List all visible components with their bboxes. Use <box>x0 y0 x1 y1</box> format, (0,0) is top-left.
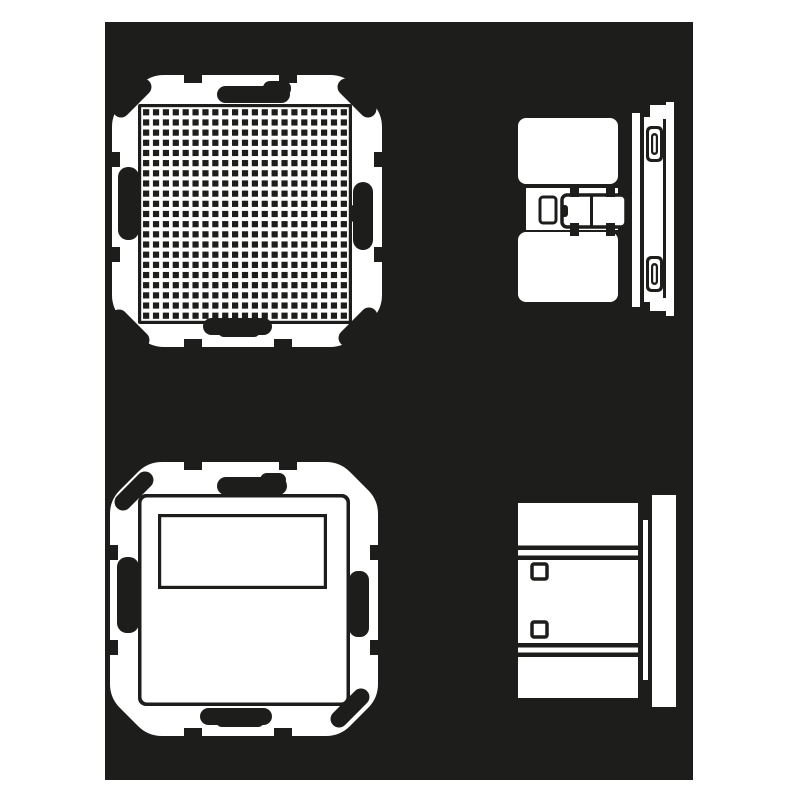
bottom-center-slot-bump <box>218 324 260 337</box>
speaker-grille-holes <box>143 109 347 319</box>
module-body <box>518 503 638 698</box>
module-body-top <box>518 118 618 184</box>
figure-side-view-display-module <box>518 495 676 707</box>
figure-side-view-speaker-module <box>518 102 674 316</box>
connector-latch <box>561 205 568 217</box>
module-body-bottom <box>518 232 618 302</box>
right-claw-bump <box>349 205 360 222</box>
connector-block <box>562 195 626 227</box>
left-claw-bump <box>128 200 141 219</box>
small-terminal <box>540 197 556 223</box>
technical-drawing <box>0 0 800 800</box>
top-center-slot-bump <box>263 81 291 96</box>
support-frame-edge <box>632 113 640 307</box>
cover-plate-edge <box>666 102 674 316</box>
figure-front-view-display-module <box>110 462 378 736</box>
drawing-sheet <box>0 0 800 800</box>
cover-plate-edge <box>652 495 676 707</box>
right-claw <box>349 571 369 637</box>
support-frame-edge <box>643 520 648 680</box>
top-center-slot-bump <box>260 473 286 487</box>
display-window <box>160 516 326 588</box>
fixing-screw-top <box>532 564 547 579</box>
fixing-screw-bottom <box>532 622 547 637</box>
figure-front-view-speaker-module <box>107 75 382 352</box>
retaining-clip-top <box>646 126 663 162</box>
retaining-clip-bottom <box>646 256 663 292</box>
bottom-center-slot-bump <box>216 714 264 727</box>
